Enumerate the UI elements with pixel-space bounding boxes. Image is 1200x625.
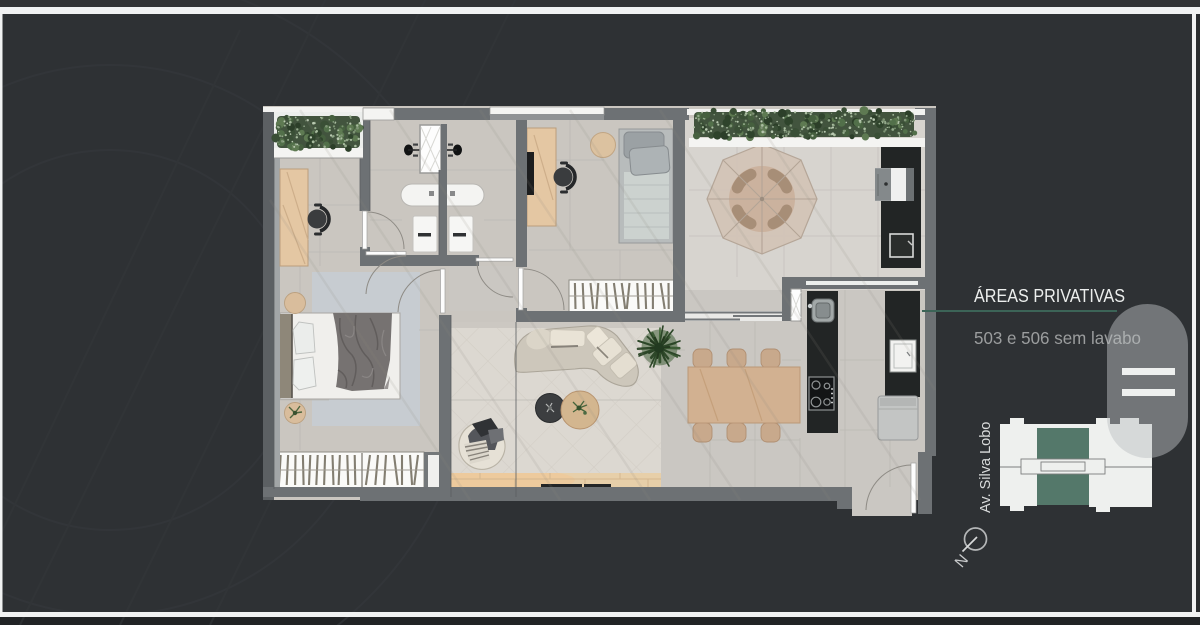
svg-text:ÁREAS PRIVATIVAS: ÁREAS PRIVATIVAS	[974, 285, 1125, 306]
svg-text:Av. Silva Lobo: Av. Silva Lobo	[978, 422, 994, 513]
